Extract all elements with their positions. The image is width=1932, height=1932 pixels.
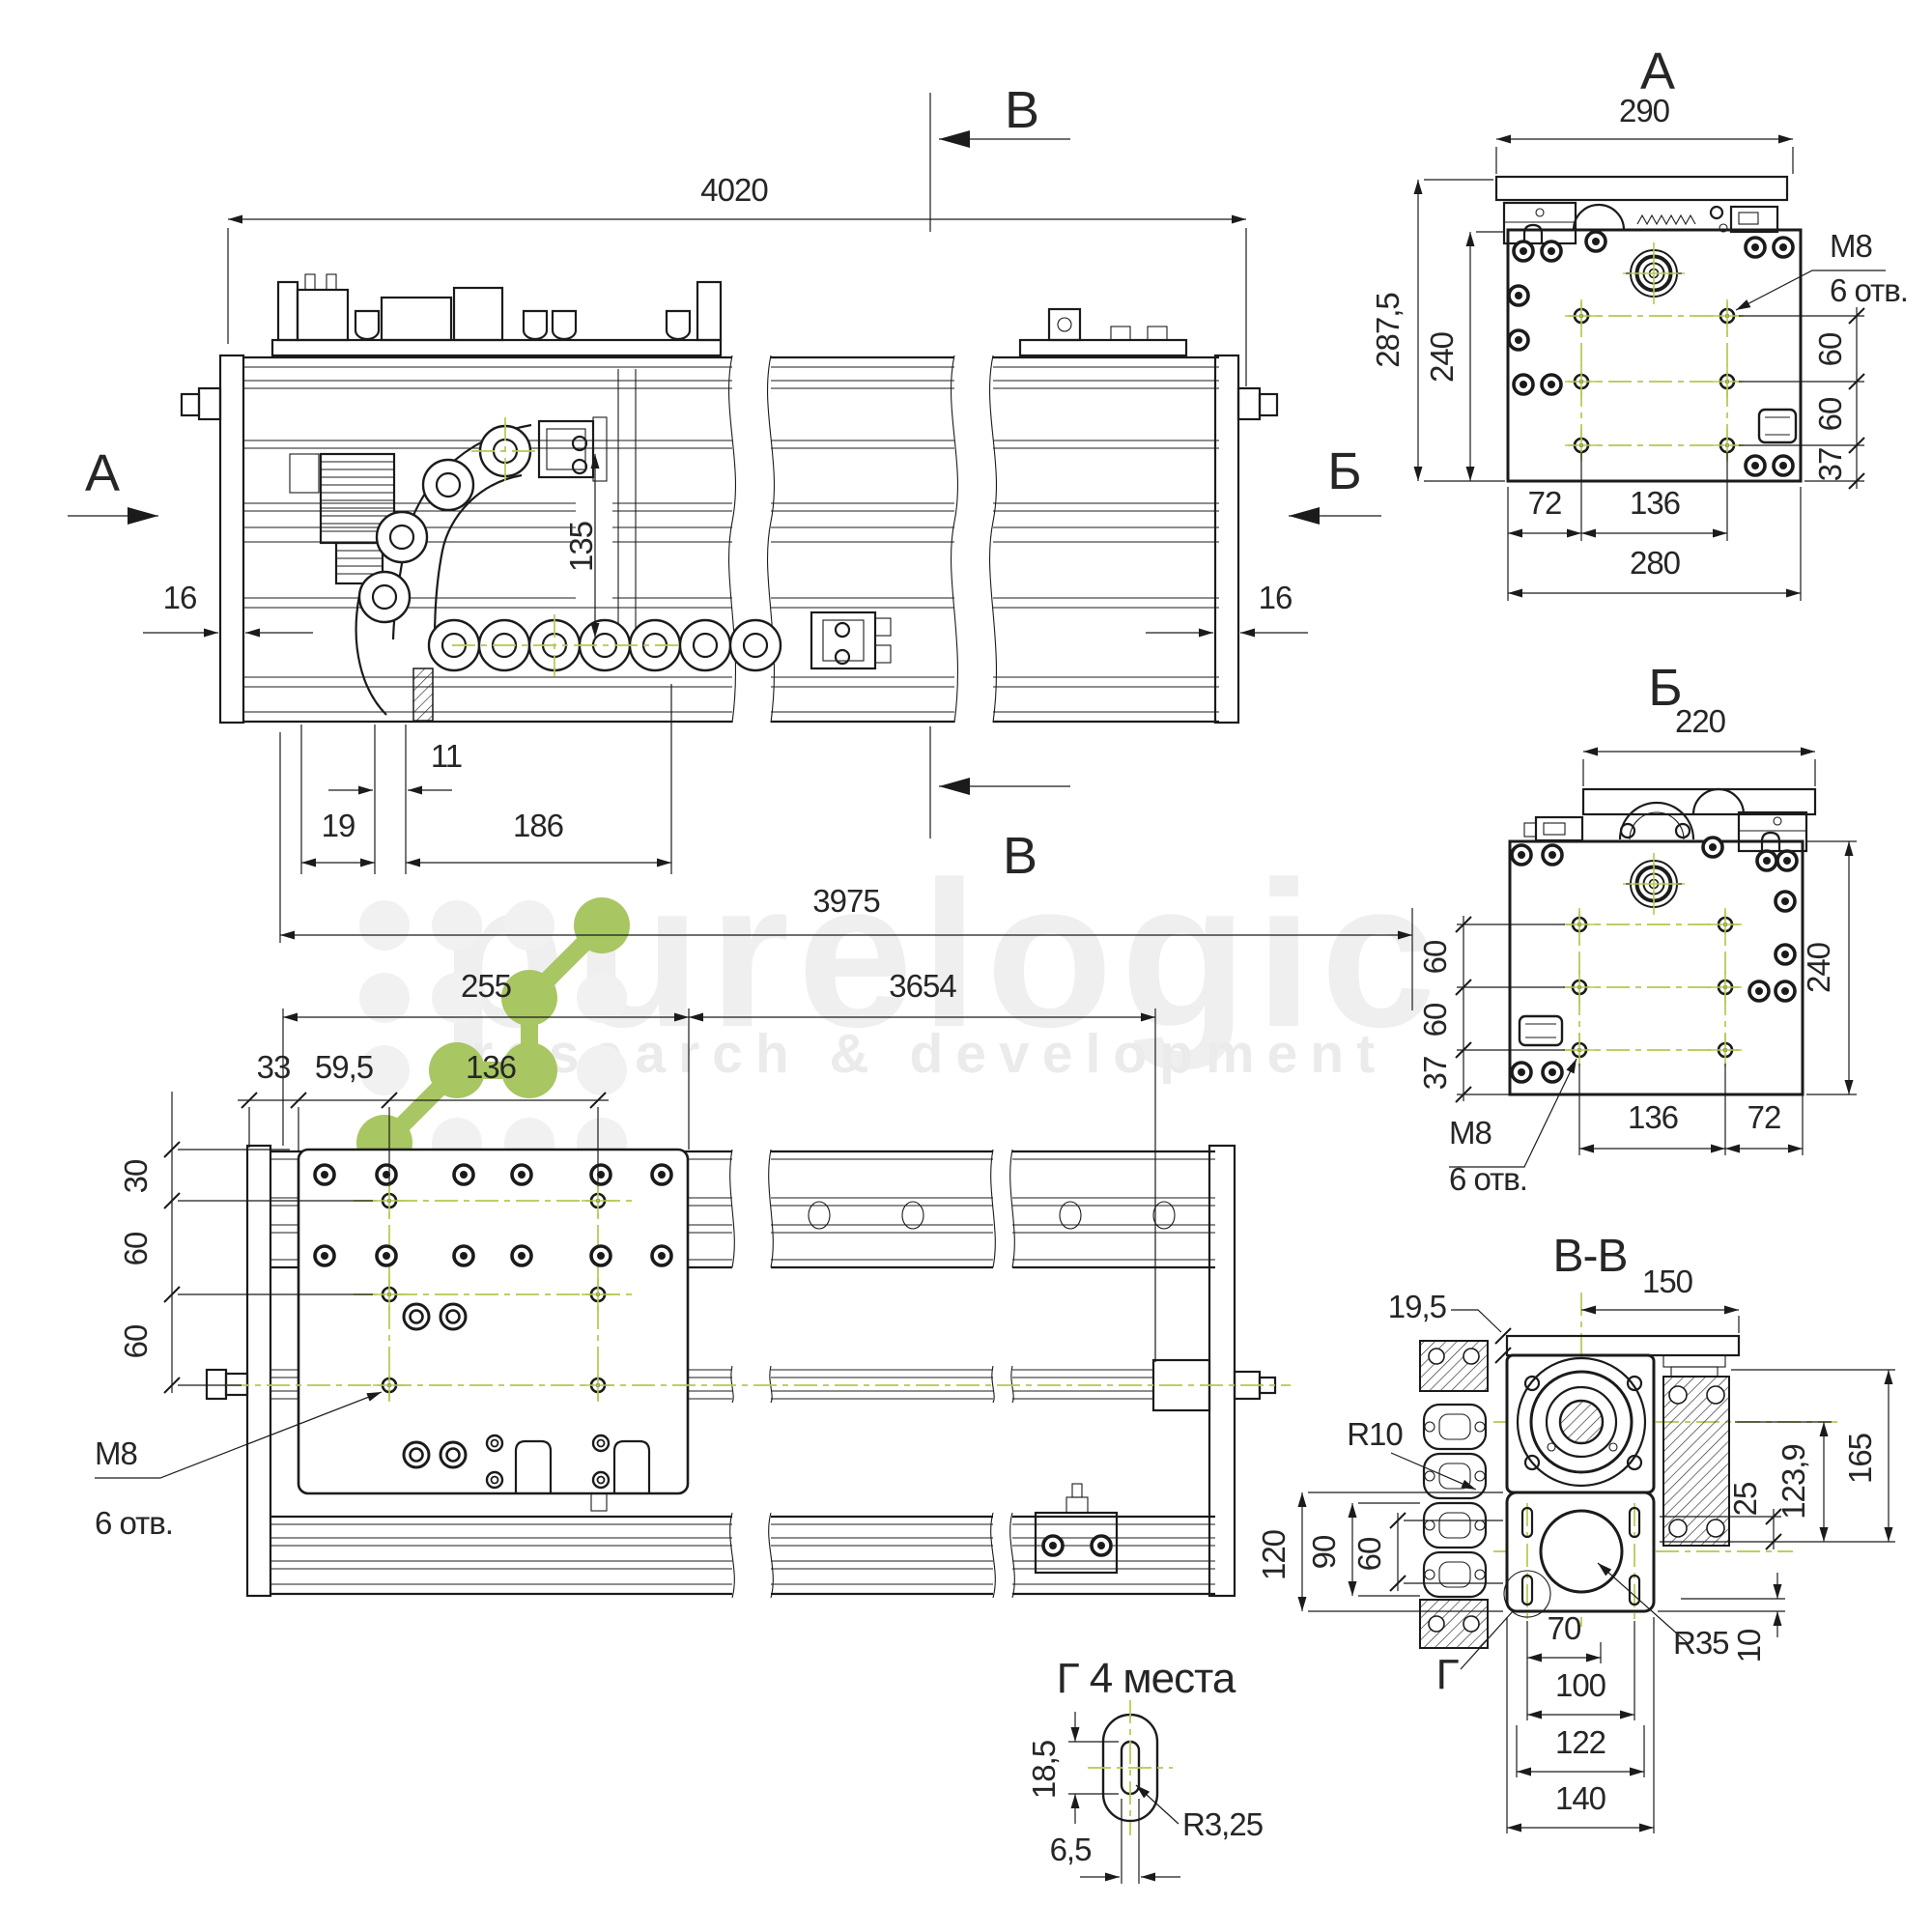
dim-70: 70 [1548, 1610, 1581, 1646]
dim-72-b: 72 [1747, 1099, 1781, 1135]
dim-122: 122 [1555, 1724, 1605, 1760]
dim-255: 255 [461, 968, 511, 1004]
dim-25: 25 [1727, 1483, 1763, 1517]
gear-drive [290, 454, 394, 583]
detail-g-pointer: Г [1436, 1651, 1460, 1698]
dim-11: 11 [431, 738, 462, 774]
plan-carriage-plate [226, 1150, 1291, 1511]
dim-120: 120 [1256, 1529, 1292, 1580]
dim-72-a: 72 [1528, 485, 1562, 521]
dim-3975: 3975 [812, 883, 879, 919]
dim-19-5: 19,5 [1388, 1289, 1446, 1324]
detail-g-title: Г 4 места [1057, 1655, 1236, 1702]
energy-chain [356, 417, 891, 721]
dim-19: 19 [322, 808, 355, 843]
energy-chain-section [1424, 1405, 1486, 1597]
left-tension-bolt [182, 388, 220, 419]
dim-59-5: 59,5 [315, 1049, 373, 1085]
view-label-b: Б [1327, 442, 1361, 500]
dim-165: 165 [1842, 1434, 1878, 1484]
dim-220: 220 [1675, 703, 1726, 739]
view-b-hole-grid [1563, 908, 1742, 1066]
left-end-plate [220, 355, 243, 723]
view-b-body [1510, 789, 1815, 1094]
view-b: Б 220 60 60 37 240 [1417, 659, 1857, 1197]
plan-clamp-block [1036, 1484, 1117, 1573]
watermark: purelogic research & development [356, 838, 1444, 1171]
callout-m8-a: М8 [1830, 228, 1872, 264]
dim-240-b: 240 [1801, 942, 1836, 993]
section-hatch [413, 668, 433, 721]
dim-16-left: 16 [163, 580, 197, 615]
section-vv: В-В 150 [1256, 1231, 1895, 1833]
view-a-title: А [1640, 43, 1675, 100]
dim-37-b: 37 [1417, 1057, 1453, 1091]
chain-top-attachment [539, 417, 607, 481]
dim-136-b: 136 [1628, 1099, 1678, 1135]
callout-m8-plan: М8 [95, 1435, 137, 1471]
main-dimensions: 4020 16 16 135 11 19 186 [143, 172, 1308, 874]
sensor-bracket [1020, 309, 1186, 355]
dim-18-5: 18,5 [1026, 1741, 1062, 1799]
dim-186: 186 [513, 808, 563, 843]
callout-6otv-plan: 6 отв. [95, 1505, 173, 1541]
dim-33: 33 [257, 1049, 291, 1085]
dim-100: 100 [1555, 1667, 1606, 1703]
dim-136-a: 136 [1630, 485, 1680, 521]
rail-profile [182, 355, 1277, 723]
view-a: А 290 287,5 240 М8 6 отв [1370, 43, 1908, 601]
section-label-v-top: В [1005, 81, 1039, 139]
dim-37-a: 37 [1812, 448, 1848, 482]
detail-g: Г 4 места 18,5 R3,25 6,5 [1026, 1655, 1263, 1884]
drawing-canvas: purelogic research & development [0, 0, 1932, 1932]
dim-6-5: 6,5 [1050, 1832, 1092, 1867]
dim-150: 150 [1642, 1264, 1693, 1299]
main-view: В В А Б 4020 16 16 135 11 19 186 [68, 81, 1381, 885]
dim-4020: 4020 [700, 172, 768, 208]
view-label-a: А [85, 444, 120, 502]
callout-6otv-b: 6 отв. [1449, 1161, 1527, 1197]
dim-r3-25: R3,25 [1182, 1806, 1263, 1842]
dim-r35: R35 [1673, 1625, 1729, 1661]
view-a-hole-grid [1565, 299, 1744, 462]
dim-16-right: 16 [1259, 580, 1293, 615]
callout-m8-b: М8 [1449, 1115, 1492, 1151]
dim-90: 90 [1306, 1535, 1342, 1569]
dim-r10: R10 [1347, 1416, 1403, 1452]
dim-60-plan-top: 60 [118, 1232, 154, 1265]
section-label-v-bottom: В [1003, 827, 1037, 885]
rail-clamp-a [1504, 203, 1576, 243]
section-vv-title: В-В [1552, 1231, 1627, 1282]
dim-287-5: 287,5 [1370, 293, 1406, 368]
dim-60-a-top: 60 [1812, 332, 1848, 366]
dim-60-vv: 60 [1351, 1537, 1387, 1571]
dim-290: 290 [1619, 93, 1670, 128]
dim-136-plan: 136 [466, 1049, 516, 1085]
dim-135: 135 [563, 522, 599, 572]
right-tension-bolt [1238, 388, 1277, 419]
carriage-assembly [272, 274, 1186, 643]
dim-60-a-mid: 60 [1812, 397, 1848, 431]
dim-60-plan-bottom: 60 [118, 1324, 154, 1358]
rail-clamp-b [1739, 812, 1806, 851]
motor-mount-plate [1504, 1492, 1654, 1623]
dim-60-b-mid: 60 [1417, 1003, 1453, 1037]
dim-280: 280 [1630, 545, 1681, 581]
view-a-body [1496, 177, 1801, 481]
dim-3654: 3654 [889, 968, 956, 1004]
chain-anchor-block [811, 612, 891, 668]
plan-left-plate [247, 1146, 270, 1596]
dim-10: 10 [1731, 1629, 1767, 1662]
dim-30: 30 [118, 1159, 154, 1193]
dim-140: 140 [1555, 1780, 1606, 1816]
dim-240-a: 240 [1424, 331, 1460, 383]
dim-60-b-top: 60 [1417, 940, 1453, 974]
callout-6otv-a: 6 отв. [1830, 272, 1908, 308]
view-a-dimensions: 290 287,5 240 М8 6 отв. 60 60 37 72 136 … [1370, 93, 1908, 601]
dim-123-9: 123,9 [1776, 1444, 1811, 1520]
right-end-plate [1215, 355, 1238, 723]
plan-right-plate [1209, 1146, 1235, 1596]
plan-left-bolt [207, 1370, 247, 1399]
